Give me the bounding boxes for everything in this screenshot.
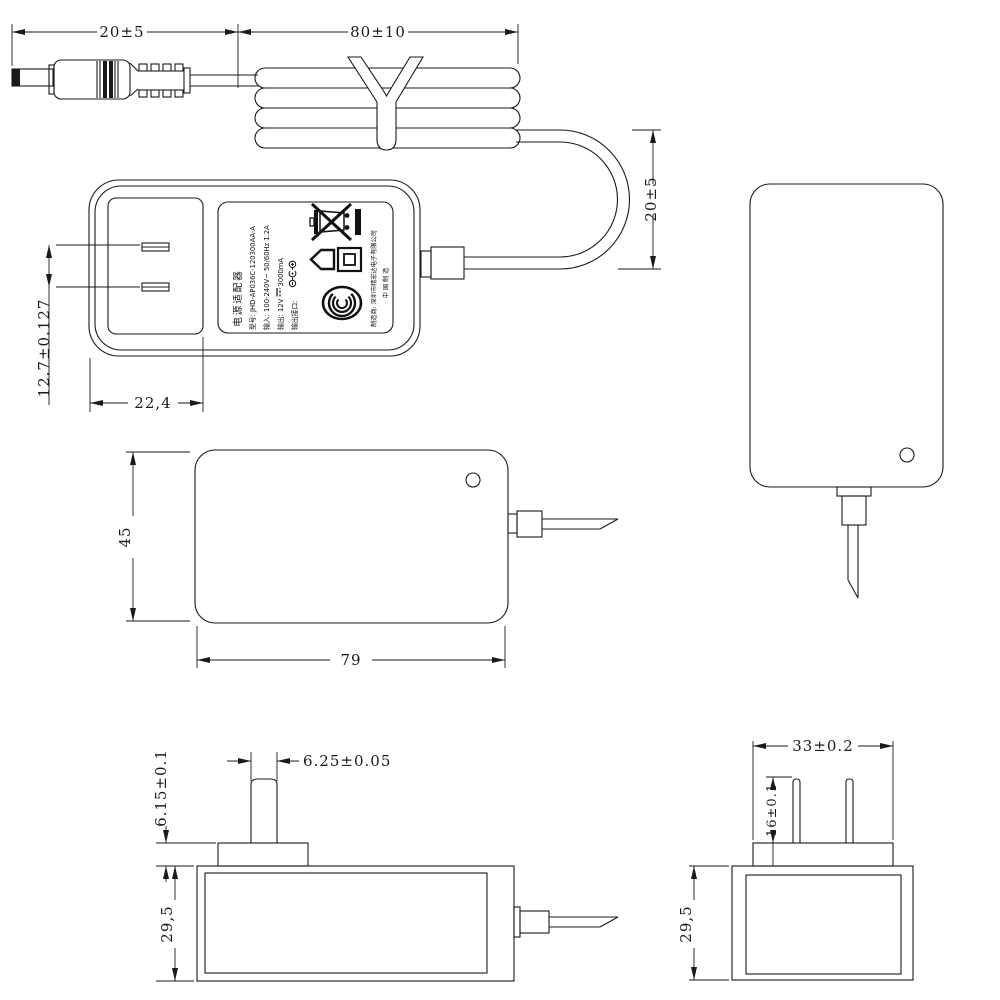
svg-text:80±10: 80±10 [350,23,406,41]
label-made-in: 中 国 制 造 [382,268,390,299]
dc-plug [12,60,258,99]
dim-plug-base-height: 6.15±0.1 [152,749,216,882]
dim-pin-area-offset: 22,4 [90,337,203,412]
dim-pin-blade-width: 6.25±0.05 [227,752,391,781]
label-port: 输出接口: [290,301,299,330]
svg-text:20±5: 20±5 [642,176,660,221]
label-output-current: 3000mA [277,258,285,287]
dc-current-symbol-icon [277,288,280,297]
dim-loop-height: 20±5 [618,130,661,269]
dim-pin-length: 16±0.1 [765,777,792,866]
front-view-cable [542,519,618,529]
dc-polarity-icon [289,261,296,287]
adapter-side-view [197,779,618,981]
back-view-cable [848,525,858,598]
dim-plug-length: 20±5 [12,23,238,88]
adapter-technical-drawing: 电源适配器 型号: JHD-AP036C-120300AA-A 输入: 100-… [0,0,1000,1000]
plug-base-end [753,843,893,866]
svg-text:20±5: 20±5 [99,23,144,41]
dim-body-thickness-side: 29,5 [156,866,194,981]
drawing-canvas: 电源适配器 型号: JHD-AP036C-120300AA-A 输入: 100-… [0,0,1000,1000]
label-title: 电源适配器 [232,269,244,327]
label-model: 型号: JHD-AP036C-120300AA-A [248,226,257,330]
label-output: 输出: 12V [276,298,285,330]
adapter-front-view [195,450,618,623]
dim-body-thickness-end: 29,5 [677,866,729,980]
svg-text:33±0.2: 33±0.2 [792,737,854,755]
adapter-top-view: 电源适配器 型号: JHD-AP036C-120300AA-A 输入: 100-… [89,180,464,356]
svg-text:29,5: 29,5 [158,905,176,942]
svg-text:6.25±0.05: 6.25±0.05 [303,752,391,770]
ac-pin-side [251,779,277,843]
svg-text:22,4: 22,4 [134,394,171,412]
side-view-cable [549,917,618,927]
plug-tip-contact [12,69,20,86]
cable-exit-step [421,251,431,277]
cable-coil [255,57,520,150]
ccc-certification-icon [323,287,361,319]
weee-solid-bar-icon [355,209,361,235]
svg-text:6.15±0.1: 6.15±0.1 [152,749,170,827]
ac-pin-right [846,779,853,843]
dim-body-length: 79 [197,626,505,669]
pin-recess [108,198,203,334]
case-hole [900,448,914,462]
class-ii-double-square-icon [338,248,361,271]
svg-text:16±0.1: 16±0.1 [765,783,780,837]
plug-strain-relief [138,64,190,97]
svg-text:12.7±0.127: 12.7±0.127 [35,299,53,398]
svg-text:29,5: 29,5 [677,905,695,942]
weee-crossed-bin-icon [310,204,351,240]
dim-pin-pitch: 12.7±0.127 [35,245,140,405]
indoor-use-house-icon [311,250,334,269]
adapter-end-view [732,779,913,980]
cable-tie [348,57,423,150]
cable-exit-boot [431,247,464,279]
dim-body-width: 45 [116,452,190,621]
label-manufacturer: 制造商: 深圳市精宏达电子有限公司 [370,230,378,327]
svg-text:79: 79 [340,651,361,669]
label-input: 输入: 100-240V~ 50/60Hz 1.2A [262,225,271,330]
case-hole-front [466,473,480,487]
adapter-back-view [750,184,943,598]
plug-base-side [218,843,308,866]
dim-bundle-length: 80±10 [238,23,518,64]
cable-loop [464,130,630,269]
svg-text:45: 45 [116,526,134,547]
rating-label: 电源适配器 型号: JHD-AP036C-120300AA-A 输入: 100-… [218,202,393,333]
ac-pin-slots [142,243,169,291]
ac-pin-left [793,779,800,843]
